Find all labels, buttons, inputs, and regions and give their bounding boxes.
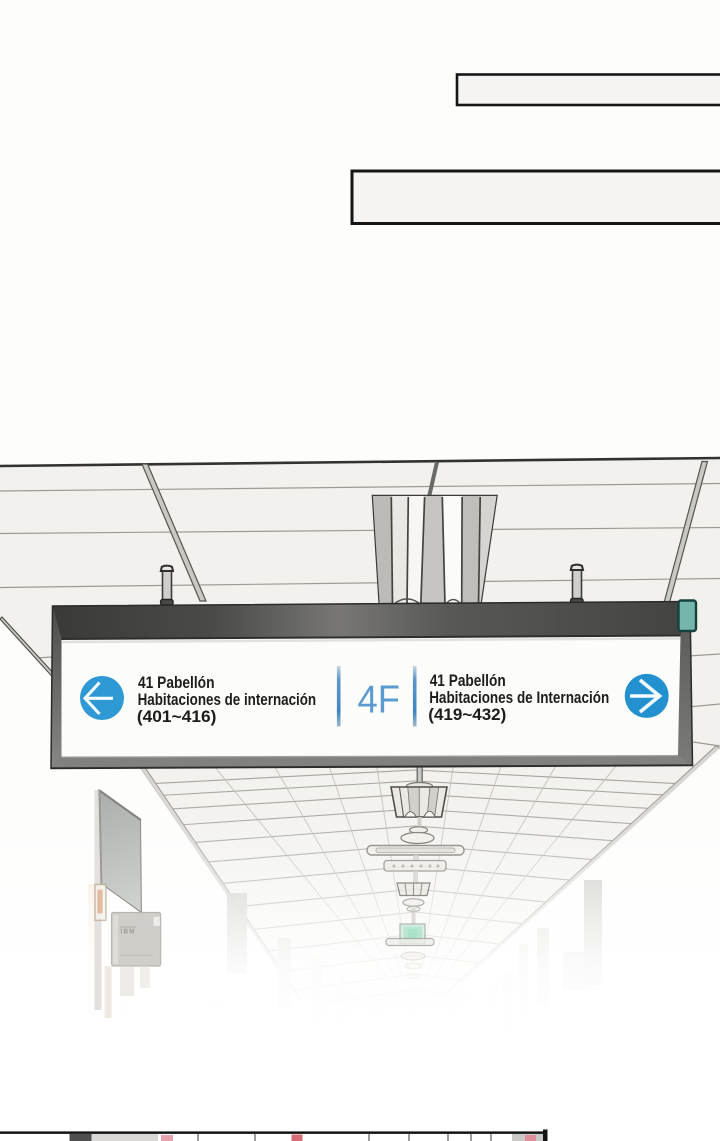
svg-text:41 Pabellón: 41 Pabellón bbox=[138, 674, 215, 692]
svg-text:Habitaciones de internación: Habitaciones de internación bbox=[138, 691, 317, 709]
svg-text:Habitaciones de Internación: Habitaciones de Internación bbox=[429, 689, 609, 707]
svg-text:4F: 4F bbox=[358, 679, 401, 722]
svg-text:(401~416): (401~416) bbox=[137, 708, 217, 726]
svg-text:(419~432): (419~432) bbox=[428, 706, 506, 724]
svg-text:41 Pabellón: 41 Pabellón bbox=[430, 672, 506, 690]
svg-text:IBM: IBM bbox=[121, 930, 136, 936]
